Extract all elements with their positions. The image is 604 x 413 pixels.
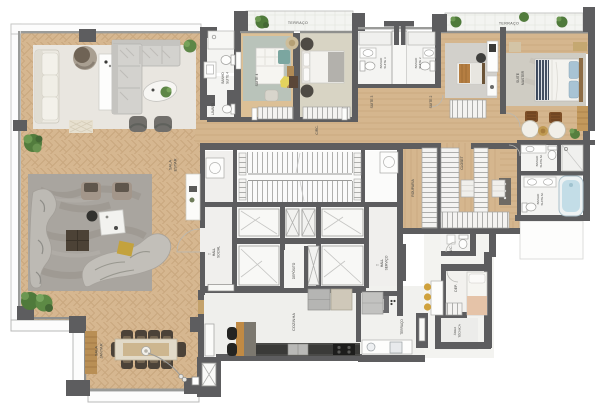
svg-text:SUITE 4: SUITE 4 <box>255 73 259 86</box>
svg-text:↑: ↑ <box>375 264 381 267</box>
svg-text:DEPÓSITO: DEPÓSITO <box>291 262 296 279</box>
svg-text:W.C.: W.C. <box>449 245 453 252</box>
svg-text:TERRAÇO: TERRAÇO <box>288 21 308 25</box>
svg-text:TERRAÇO: TERRAÇO <box>400 319 404 335</box>
svg-text:↑: ↑ <box>207 253 213 256</box>
svg-text:SUITE 3: SUITE 3 <box>383 57 387 69</box>
svg-text:DEP.: DEP. <box>454 284 458 292</box>
svg-text:SUITE M.: SUITE M. <box>539 154 543 167</box>
svg-text:BANHO: BANHO <box>221 72 225 84</box>
svg-text:SERVIÇO: SERVIÇO <box>385 255 389 270</box>
svg-text:SUITE 4: SUITE 4 <box>226 72 230 84</box>
svg-text:TERRAÇO: TERRAÇO <box>499 22 519 26</box>
svg-text:JANTAR: JANTAR <box>99 343 104 358</box>
svg-text:LAVABO: LAVABO <box>211 102 215 115</box>
svg-text:ROUPARIA: ROUPARIA <box>411 179 415 197</box>
svg-text:MASTER: MASTER <box>521 70 525 85</box>
svg-text:SUITE 2: SUITE 2 <box>418 57 422 69</box>
svg-text:ESTAR: ESTAR <box>173 158 178 171</box>
svg-text:TÉCNICA: TÉCNICA <box>457 323 462 338</box>
svg-text:CLOSET: CLOSET <box>460 156 464 170</box>
svg-text:CIRC.: CIRC. <box>315 125 319 134</box>
svg-text:SUITE: SUITE <box>516 72 520 83</box>
svg-text:SOCIAL: SOCIAL <box>217 246 221 258</box>
svg-text:COZINHA: COZINHA <box>291 313 296 331</box>
svg-text:SUITE 2: SUITE 2 <box>429 95 433 108</box>
svg-text:ÁREA: ÁREA <box>453 326 457 335</box>
svg-text:SUITE M.: SUITE M. <box>540 192 544 205</box>
svg-text:SUITE 3: SUITE 3 <box>370 95 374 108</box>
